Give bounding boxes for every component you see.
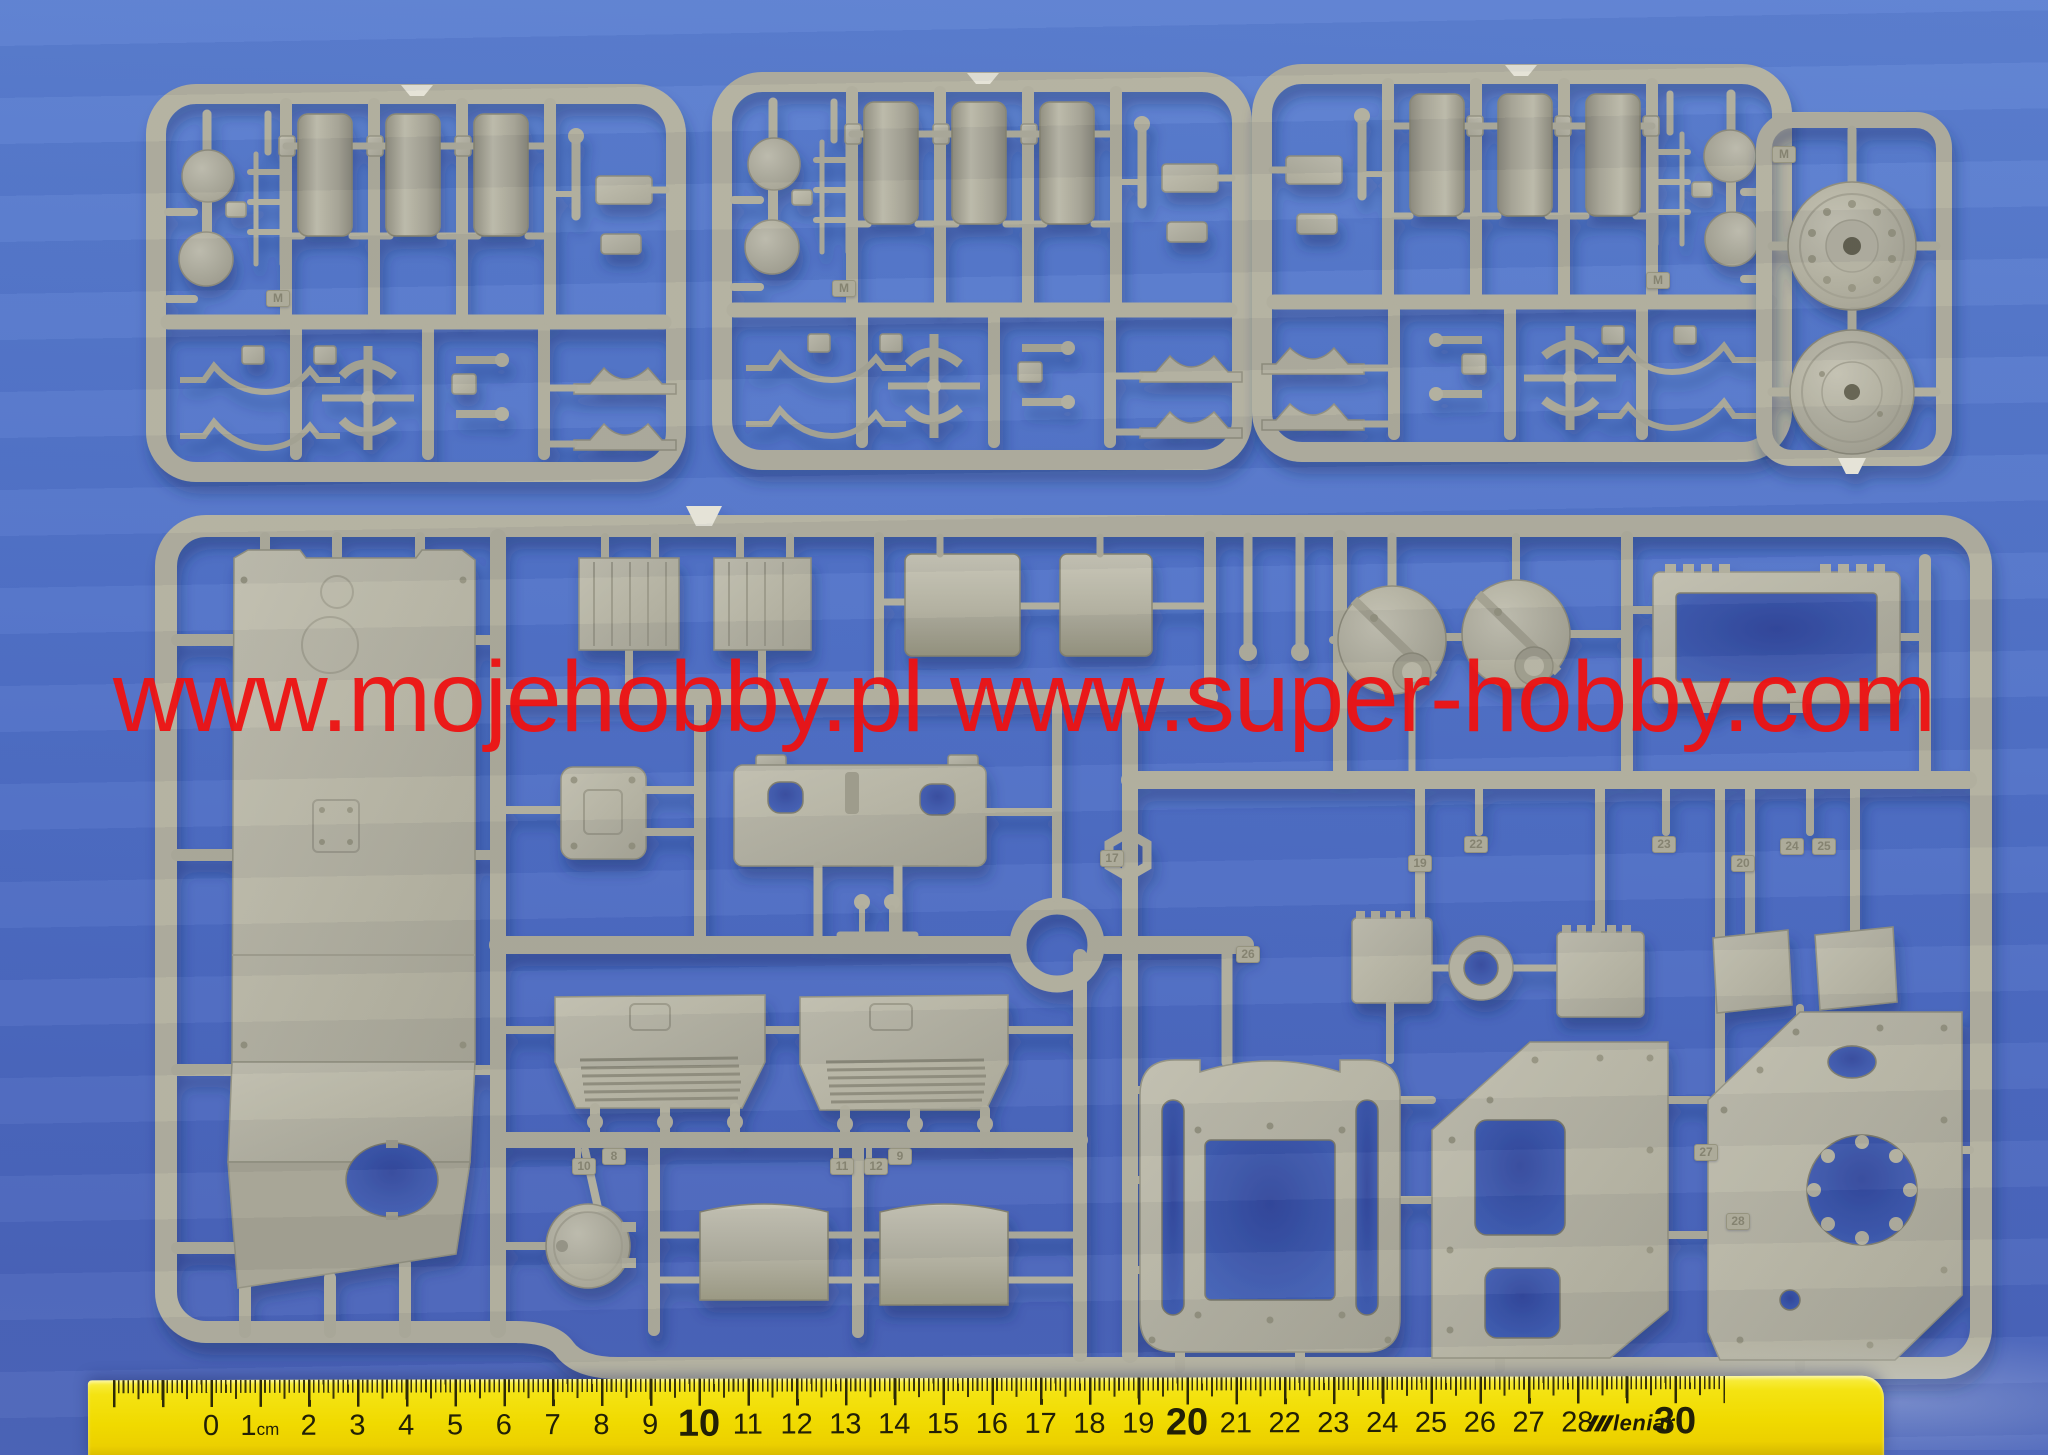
ruler-number-14: 14 — [878, 1408, 910, 1441]
ruler-number-26: 26 — [1464, 1407, 1496, 1440]
molded-tab-28: 28 — [1726, 1213, 1750, 1230]
molded-tab-11: 11 — [830, 1158, 854, 1175]
molded-tab-9: 9 — [888, 1148, 912, 1165]
ruler-number-11: 11 — [733, 1409, 763, 1442]
ruler-halfcm-ticks — [113, 1376, 1725, 1399]
photo-scene: .fr{fill:none;stroke:#b2b09f;stroke-line… — [0, 0, 2048, 1455]
ruler: 01cm234567891011121314151617181920212223… — [88, 1376, 1884, 1455]
molded-tab-M: M — [266, 290, 290, 307]
sprue-main — [166, 506, 1981, 1368]
ruler-number-13: 13 — [829, 1408, 861, 1441]
sprue-top-right-mirrored — [1262, 65, 1782, 452]
hull-side-plate-holes — [1432, 1042, 1708, 1368]
ruler-number-19: 19 — [1122, 1408, 1154, 1441]
ruler-number-22: 22 — [1268, 1407, 1300, 1440]
ruler-brand-logo: leniar — [1590, 1410, 1675, 1436]
ruler-number-12: 12 — [780, 1408, 812, 1441]
sprue-top-middle — [722, 73, 1242, 460]
molded-tab-M: M — [832, 280, 856, 297]
ruler-number-28: 28 — [1561, 1406, 1593, 1439]
molded-tab-24: 24 — [1780, 838, 1804, 855]
molded-tab-19: 19 — [1408, 855, 1432, 872]
ruler-number-4: 4 — [398, 1409, 414, 1442]
idler-wheel-plain — [1790, 330, 1914, 454]
ruler-number-6: 6 — [496, 1409, 512, 1442]
ruler-number-3: 3 — [349, 1410, 365, 1443]
molded-tab-8: 8 — [602, 1148, 626, 1165]
ruler-number-25: 25 — [1415, 1407, 1447, 1440]
watermark-text: www.mojehobby.pl www.super-hobby.com — [0, 640, 2048, 755]
ruler-number-23: 23 — [1317, 1407, 1349, 1440]
idler-wheel-bolted — [1788, 182, 1916, 310]
ruler-number-15: 15 — [927, 1408, 959, 1441]
ruler-number-5: 5 — [447, 1409, 463, 1442]
hull-oval-opening — [346, 1143, 438, 1217]
ruler-number-20: 20 — [1166, 1401, 1208, 1444]
molded-tab-20: 20 — [1731, 855, 1755, 872]
ruler-number-10: 10 — [678, 1403, 720, 1446]
ruler-number-2: 2 — [300, 1410, 316, 1443]
ruler-number-17: 17 — [1024, 1408, 1056, 1441]
ruler-cm-ticks — [113, 1376, 1725, 1407]
molded-tab-17: 17 — [1100, 850, 1124, 867]
molded-tab-27: 27 — [1694, 1144, 1718, 1161]
ruler-number-16: 16 — [976, 1408, 1008, 1441]
brand-bars-icon — [1590, 1415, 1610, 1431]
molded-tab-12: 12 — [864, 1158, 888, 1175]
engine-side-panels — [498, 995, 1080, 1140]
molded-tab-M: M — [1646, 272, 1670, 289]
engine-compartment-frame — [1130, 1060, 1432, 1368]
ruler-number-18: 18 — [1073, 1408, 1105, 1441]
sprue-top-left — [156, 85, 676, 472]
molded-tab-23: 23 — [1652, 836, 1676, 853]
molded-tab-M: M — [1772, 146, 1796, 163]
molded-tab-22: 22 — [1464, 836, 1488, 853]
brand-name: leniar — [1613, 1410, 1675, 1436]
hull-side-plate-round-hole — [1708, 1012, 1970, 1368]
molded-tab-26: 26 — [1236, 946, 1260, 963]
ruler-number-24: 24 — [1366, 1407, 1398, 1440]
ruler-number-21: 21 — [1220, 1407, 1252, 1440]
molded-tab-10: 10 — [572, 1158, 596, 1175]
ruler-number-9: 9 — [642, 1409, 658, 1442]
molded-tab-25: 25 — [1812, 838, 1836, 855]
ruler-number-0: 0 — [203, 1410, 219, 1443]
ruler-number-1: 1cm — [240, 1410, 279, 1443]
ruler-number-27: 27 — [1512, 1407, 1544, 1440]
ruler-number-8: 8 — [593, 1409, 609, 1442]
ruler-number-7: 7 — [544, 1409, 560, 1442]
